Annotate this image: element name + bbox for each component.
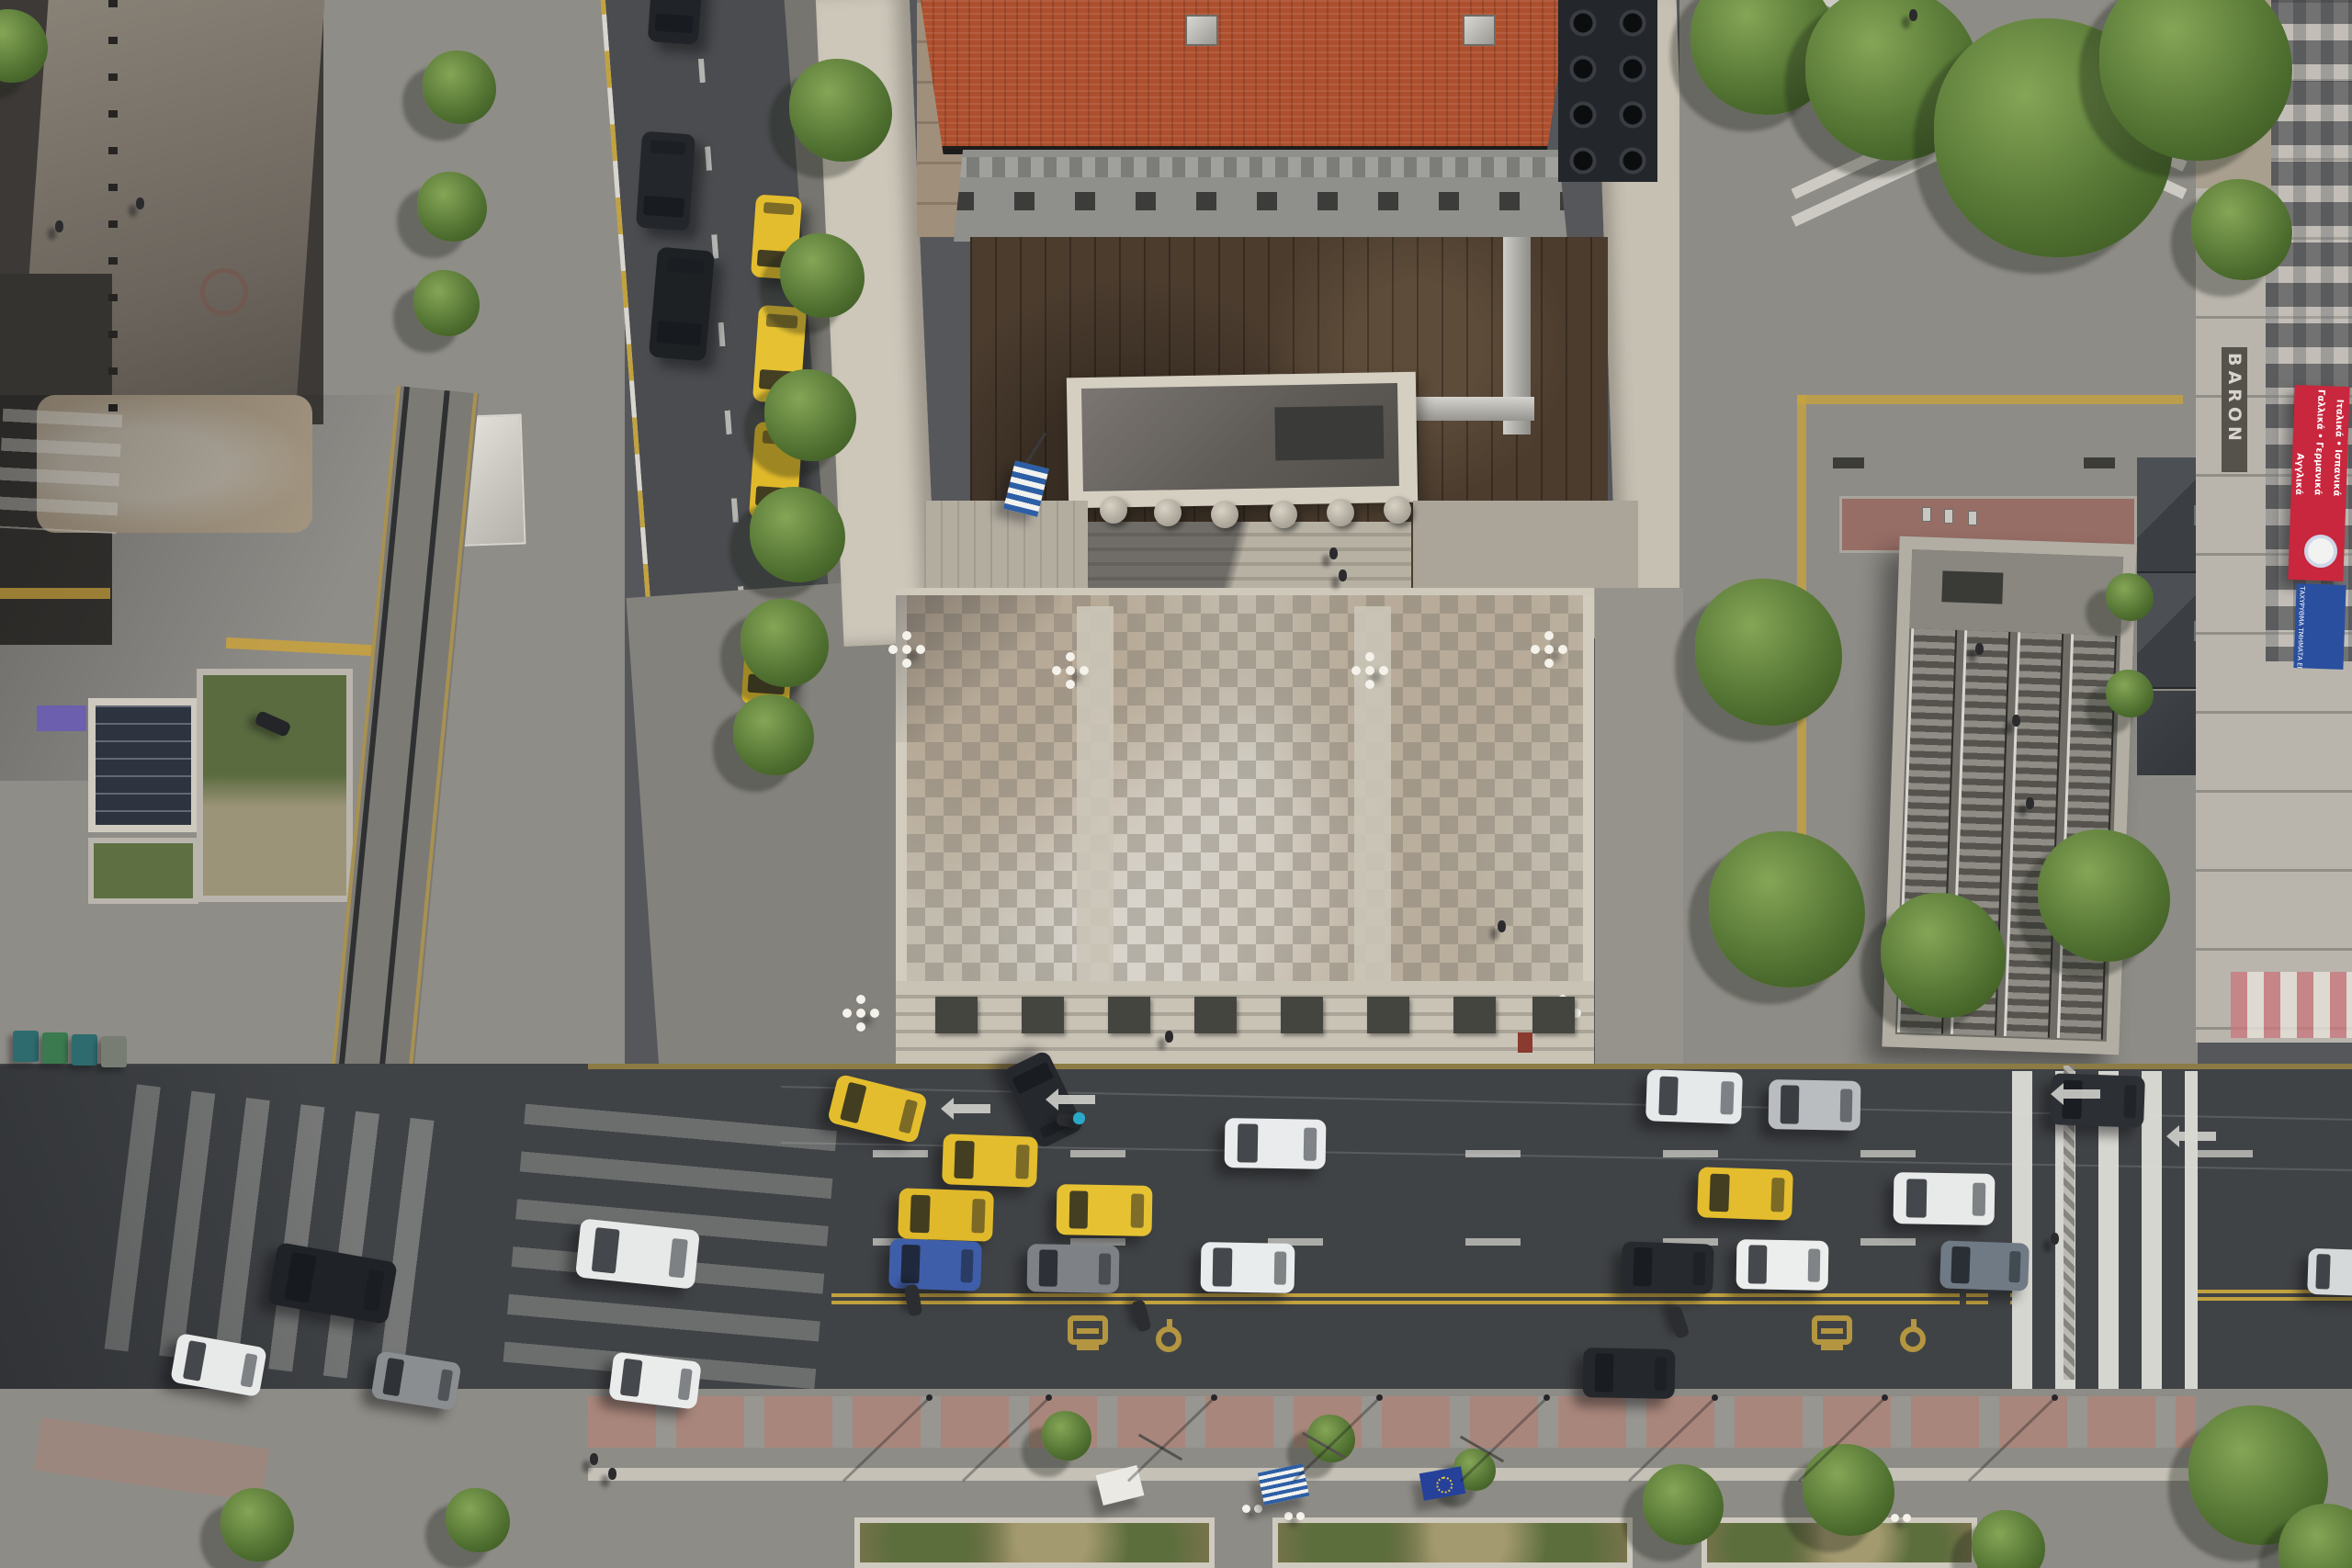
suv-dark-door-open <box>649 247 715 362</box>
taxi <box>942 1134 1038 1188</box>
bus-lane-marking <box>1812 1315 1852 1345</box>
bike-lane-marking <box>1900 1326 1926 1352</box>
lane-arrow-left <box>2058 1089 2100 1099</box>
bush <box>1042 1411 1091 1461</box>
aerial-photo-athens-intersection: BARON Αγγλικά Γαλλικά • Γερμανικά Ιταλικ… <box>0 0 2352 1568</box>
candelabra-lamp <box>1365 666 1374 675</box>
shrub <box>2106 670 2154 717</box>
van-white <box>1894 1172 1996 1225</box>
bike-rack <box>1944 509 1953 524</box>
bike-rack <box>1922 507 1931 522</box>
pedestrian <box>1909 9 1917 21</box>
bench <box>2084 457 2115 468</box>
red-object <box>1518 1032 1532 1053</box>
car-blue <box>888 1238 982 1291</box>
car-gray <box>1027 1244 1120 1293</box>
pedestrian-escalator <box>2026 797 2034 809</box>
marble-plaque <box>1367 997 1409 1033</box>
car-black <box>1583 1348 1676 1399</box>
globe-lamp <box>1284 1512 1293 1520</box>
flag-eu <box>1419 1466 1466 1501</box>
motorcycle <box>1130 1299 1151 1333</box>
tree <box>789 59 892 162</box>
pedestrian-escalator <box>1975 643 1984 655</box>
parked-scooter <box>254 710 291 738</box>
pole-shadow <box>1968 1397 2056 1482</box>
lane-arrow-left <box>1053 1095 1095 1104</box>
pedestrian <box>608 1468 616 1480</box>
motorcycle <box>1668 1305 1690 1339</box>
taxi <box>1697 1167 1793 1221</box>
shrub <box>2106 573 2154 621</box>
taxi <box>1057 1184 1153 1236</box>
tree <box>1695 579 1842 726</box>
recycle-bin <box>13 1031 39 1062</box>
taxi <box>898 1188 994 1242</box>
bike-rack <box>1968 511 1977 525</box>
bench <box>1833 457 1864 468</box>
pedestrian <box>136 197 144 209</box>
tree <box>2038 829 2170 962</box>
lamp-post <box>1046 1394 1052 1401</box>
recycle-bin <box>101 1036 127 1067</box>
portico-column <box>1270 501 1297 528</box>
tree <box>423 51 496 124</box>
pedestrian <box>55 220 63 232</box>
marble-plaque <box>1532 997 1575 1033</box>
marble-plaque <box>1453 997 1496 1033</box>
van-white <box>575 1218 700 1289</box>
suv-dark <box>2050 1073 2145 1128</box>
tree <box>750 487 845 582</box>
car-dark <box>636 131 695 231</box>
candelabra-lamp <box>1066 666 1075 675</box>
lamp-post <box>2052 1394 2058 1401</box>
pole-shadow <box>1127 1397 1216 1482</box>
car-white <box>1201 1242 1295 1293</box>
bush <box>446 1488 510 1552</box>
portico-column <box>1384 496 1411 524</box>
candelabra-lamp <box>856 1009 865 1018</box>
car-gray <box>370 1350 461 1411</box>
lamp-post <box>1211 1394 1217 1401</box>
bus-lane-marking <box>1068 1315 1108 1345</box>
pole-shadow <box>1460 1397 1548 1482</box>
tree <box>1803 1444 1894 1536</box>
tree <box>1972 1510 2045 1568</box>
pedestrian <box>1339 570 1347 581</box>
car-white <box>1736 1239 1829 1291</box>
car-slate <box>1939 1240 2030 1291</box>
tree <box>1881 893 2006 1018</box>
marble-plaque <box>1108 997 1150 1033</box>
car-white <box>170 1333 267 1397</box>
lamp-post <box>1882 1394 1888 1401</box>
lane-arrow-left <box>948 1104 990 1113</box>
pedestrian <box>590 1453 598 1465</box>
tree <box>2191 179 2292 280</box>
pole-shadow <box>962 1397 1050 1482</box>
van-white <box>1225 1118 1327 1169</box>
marble-plaque <box>1022 997 1064 1033</box>
pedestrian <box>1165 1031 1173 1043</box>
tree <box>1643 1464 1724 1545</box>
tree <box>733 694 814 775</box>
taxi <box>827 1074 928 1145</box>
pedestrian <box>1329 547 1338 559</box>
tree <box>764 369 856 461</box>
tree <box>417 172 487 242</box>
globe-lamp <box>1242 1505 1250 1513</box>
bush <box>220 1488 294 1562</box>
car-dark <box>648 0 704 45</box>
recycle-bin <box>72 1034 97 1066</box>
suv-white <box>1645 1069 1743 1124</box>
pedestrian-escalator <box>2012 715 2020 727</box>
objects-layer <box>0 0 2352 1568</box>
suv-black <box>267 1242 398 1325</box>
lamp-post <box>1712 1394 1718 1401</box>
portico-column <box>1327 499 1354 526</box>
car-white <box>608 1351 702 1409</box>
pedestrian-crosswalk <box>2051 1233 2059 1245</box>
tree <box>0 9 48 83</box>
lamp-post <box>926 1394 933 1401</box>
pedestrian <box>1498 920 1506 932</box>
pole-shadow <box>842 1397 931 1482</box>
tree <box>413 270 480 336</box>
bike-lane-marking <box>1156 1326 1182 1352</box>
marble-plaque <box>935 997 978 1033</box>
portico-column <box>1100 496 1127 524</box>
tree <box>1709 831 1865 987</box>
recycle-bin <box>42 1032 68 1064</box>
lane-arrow-left <box>2174 1132 2216 1141</box>
tree <box>780 233 865 318</box>
lamp-post <box>1543 1394 1550 1401</box>
car-white-partial <box>2307 1248 2352 1296</box>
car-black <box>1621 1241 1714 1293</box>
tree <box>741 599 829 687</box>
car-silver <box>1769 1079 1861 1131</box>
candelabra-lamp <box>902 645 911 654</box>
portico-column <box>1154 499 1182 526</box>
pole-shadow <box>1293 1397 1381 1482</box>
lamp-post <box>1376 1394 1383 1401</box>
portico-column <box>1211 501 1238 528</box>
marble-plaque <box>1194 997 1237 1033</box>
candelabra-lamp <box>1544 645 1554 654</box>
globe-lamp <box>1891 1514 1899 1522</box>
marble-plaque <box>1281 997 1323 1033</box>
